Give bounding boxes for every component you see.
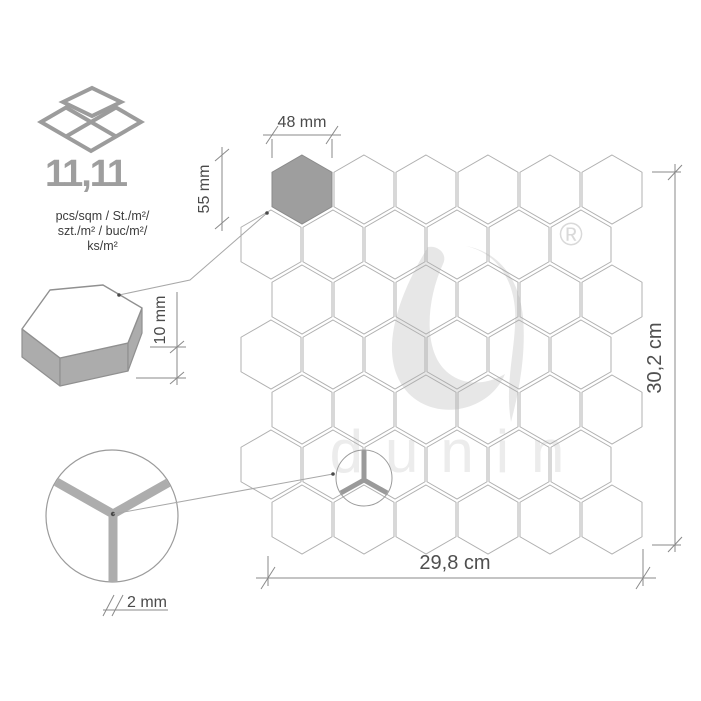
dimension-thickness: 10 mm <box>136 292 186 385</box>
diagram-artwork: dunin ® 48 mm 55 mm <box>0 0 701 701</box>
dimension-chip-width: 48 mm <box>263 114 341 158</box>
stacked-tiles-icon <box>41 88 141 151</box>
hex-chip <box>582 375 642 444</box>
hex-chip-highlighted <box>272 155 332 224</box>
dimension-grout-width: 2 mm <box>103 594 168 616</box>
thickness-label: 10 mm <box>152 296 169 345</box>
hex-chip <box>396 155 456 224</box>
hex-chip <box>334 265 394 334</box>
hex-chip <box>458 485 518 554</box>
density-units-line3: ks/m² <box>20 239 185 254</box>
dimension-sheet-height: 30,2 cm <box>644 164 682 552</box>
dimension-chip-height: 55 mm <box>196 147 229 231</box>
hex-chip <box>520 155 580 224</box>
tile-spec-sheet: dunin ® 48 mm 55 mm <box>0 0 701 701</box>
hex-chip <box>489 210 549 279</box>
grout-detail-view <box>46 450 178 584</box>
hex-chip <box>520 265 580 334</box>
hex-chip <box>272 485 332 554</box>
sheet-width-label: 29,8 cm <box>419 552 490 574</box>
hex-chip <box>303 210 363 279</box>
hex-chip <box>241 210 301 279</box>
density-stats: 11,11 pcs/sqm / St./m²/ szt./m² / buc/m²… <box>20 155 185 254</box>
hex-chip <box>272 265 332 334</box>
hex-chip <box>582 265 642 334</box>
hex-chip <box>520 485 580 554</box>
hex-chip <box>582 155 642 224</box>
dimension-sheet-width: 29,8 cm <box>256 549 656 589</box>
chip-height-label: 55 mm <box>196 165 213 214</box>
chip-width-label: 48 mm <box>278 114 327 131</box>
hex-chip <box>303 320 363 389</box>
leader-dot <box>117 293 121 297</box>
hex-chip <box>334 485 394 554</box>
sheet-height-label: 30,2 cm <box>644 322 666 393</box>
density-value: 11,11 <box>0 155 185 193</box>
chip-3d-drawing <box>22 285 142 386</box>
hex-chip <box>241 320 301 389</box>
hex-chip <box>458 155 518 224</box>
grout-width-label: 2 mm <box>127 594 167 611</box>
hex-chip <box>582 485 642 554</box>
hex-chip <box>334 155 394 224</box>
hex-chip <box>551 320 611 389</box>
density-units-line2: szt./m² / buc/m²/ <box>20 224 185 239</box>
density-units-line1: pcs/sqm / St./m²/ <box>20 209 185 224</box>
hex-chip <box>396 485 456 554</box>
leader-dot <box>265 211 269 215</box>
leader-dot <box>331 472 335 476</box>
density-units: pcs/sqm / St./m²/ szt./m² / buc/m²/ ks/m… <box>20 209 185 254</box>
mosaic-grid <box>241 155 642 554</box>
hex-chip <box>272 375 332 444</box>
